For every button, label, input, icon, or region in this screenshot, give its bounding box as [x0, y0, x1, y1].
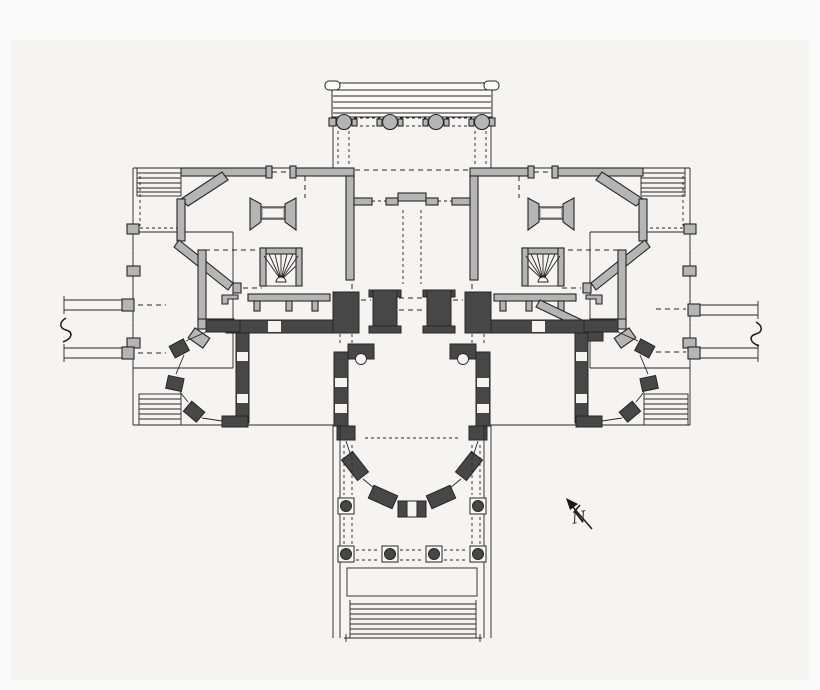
- floor-plan-canvas: N: [0, 0, 820, 690]
- column-icon: [383, 115, 398, 130]
- column-icon: [341, 501, 352, 512]
- column-icon: [385, 549, 396, 560]
- winder-stair-left: [260, 248, 302, 286]
- floor-plan-drawing: N: [0, 0, 820, 690]
- column-icon: [337, 115, 352, 130]
- niche: [458, 354, 469, 365]
- column-icon: [429, 115, 444, 130]
- entablature-cap-right: [484, 81, 499, 90]
- pier: [465, 292, 491, 333]
- column-icon: [475, 115, 490, 130]
- hall-wall-east: [470, 176, 478, 280]
- scan-panel: [11, 40, 809, 680]
- column-icon: [429, 549, 440, 560]
- pier: [333, 292, 359, 333]
- column-icon: [473, 501, 484, 512]
- entablature-cap-left: [325, 81, 340, 90]
- column-icon: [473, 549, 484, 560]
- winder-stair-right: [522, 248, 564, 286]
- column-icon: [341, 549, 352, 560]
- hall-wall-west: [346, 176, 354, 280]
- niche: [356, 354, 367, 365]
